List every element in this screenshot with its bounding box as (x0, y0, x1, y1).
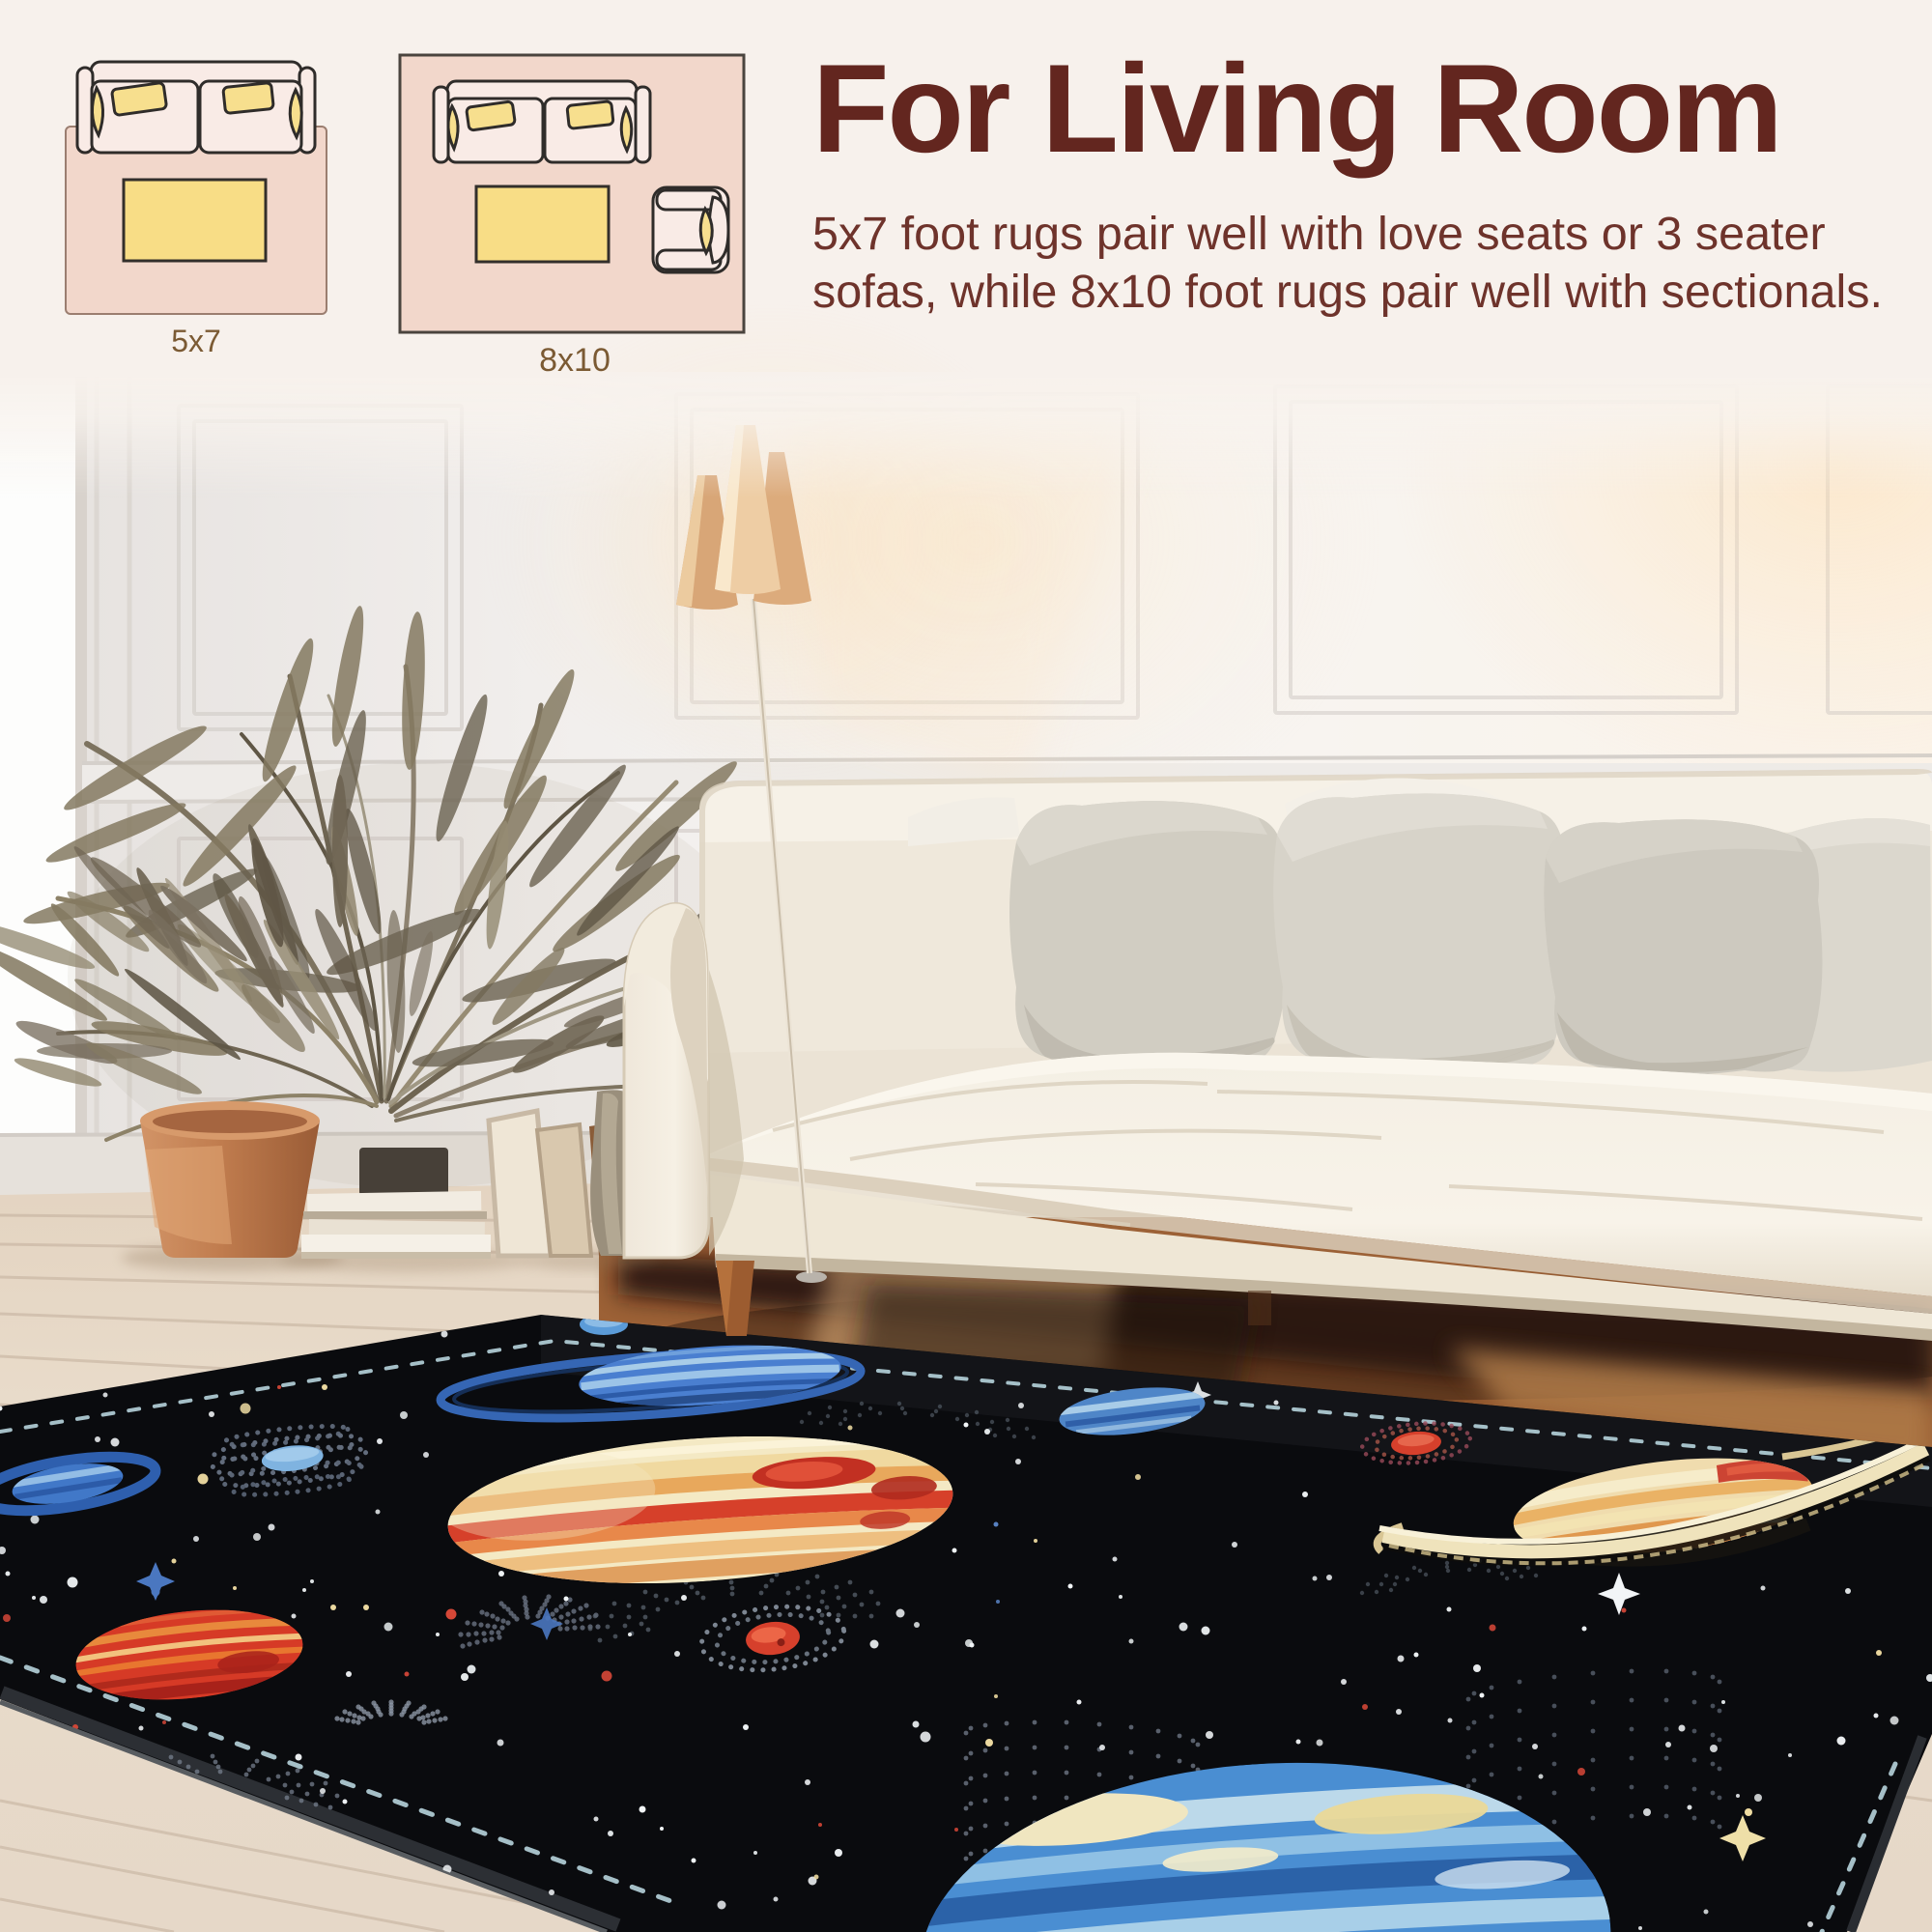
svg-text:5x7 foot rugs pair well with l: 5x7 foot rugs pair well with love seats … (812, 208, 1826, 260)
svg-text:For Living Room: For Living Room (812, 38, 1781, 179)
svg-text:5x7: 5x7 (171, 324, 221, 358)
svg-text:8x10: 8x10 (539, 342, 611, 379)
svg-text:sofas, while 8x10 foot rugs pa: sofas, while 8x10 foot rugs pair well wi… (812, 266, 1883, 318)
